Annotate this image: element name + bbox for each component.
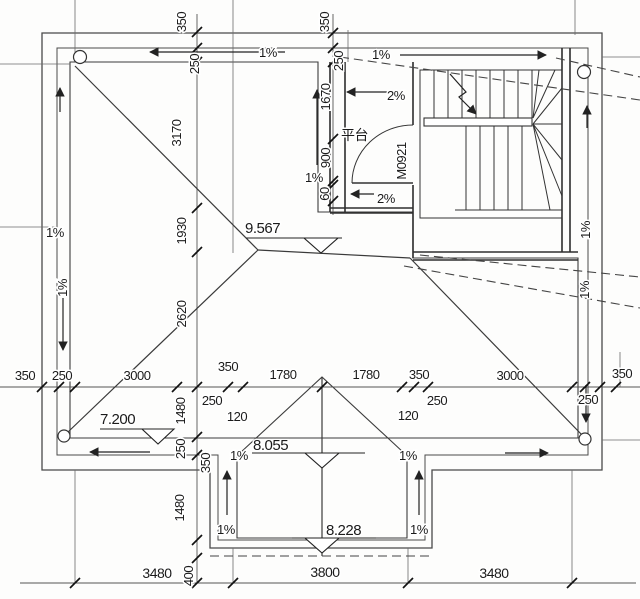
- slope-label: 1%: [577, 280, 592, 299]
- slope-label: 1%: [259, 45, 278, 60]
- dim-label: 1780: [353, 367, 380, 382]
- elevation-markers: [100, 238, 376, 553]
- elevation-triangle: [142, 429, 174, 444]
- dim-label: 250: [52, 368, 72, 383]
- roof-plan-page: 9.567 7.200 8.055 8.228 平台 M0921 1% 1% 2…: [0, 0, 640, 599]
- hip-line-bottom-right: [410, 258, 583, 436]
- drain-circle: [58, 430, 70, 442]
- dim-label: 120: [227, 409, 247, 424]
- stair-landing-line: [455, 210, 562, 218]
- main-ridge-line: [258, 250, 410, 258]
- dim-label: 350: [198, 453, 213, 473]
- slope-label: 2%: [377, 191, 396, 206]
- dim-label: 3480: [142, 565, 172, 581]
- slope-label: 1%: [410, 522, 429, 537]
- hip-line-bottom-left: [68, 250, 258, 432]
- dim-label: 350: [409, 367, 429, 382]
- stair-handrail: [424, 118, 532, 126]
- elevation-label-bay-ridge: 8.228: [326, 522, 361, 539]
- slope-label: 1%: [230, 448, 249, 463]
- dim-label: 60: [317, 187, 332, 201]
- dim-label: 2620: [174, 300, 189, 327]
- slope-label: 1%: [217, 522, 236, 537]
- dim-label: 1930: [174, 217, 189, 244]
- dim-label: 350: [174, 12, 189, 32]
- dim-label: 3480: [479, 565, 509, 581]
- dim-label: 3000: [497, 368, 524, 383]
- elevation-triangle: [305, 453, 339, 468]
- slope-label: 1%: [372, 47, 391, 62]
- dim-label: 250: [578, 392, 598, 407]
- stair-lower-treads: [466, 126, 522, 210]
- elevation-label-main-ridge: 9.567: [245, 220, 280, 237]
- stair-winder-treads: [533, 70, 562, 210]
- dim-label: 350: [15, 368, 35, 383]
- drain-circle: [74, 51, 87, 64]
- dim-label: 120: [398, 408, 418, 423]
- dim-label: 250: [427, 393, 447, 408]
- door-label: M0921: [394, 142, 409, 180]
- dim-label: 3170: [169, 119, 184, 146]
- dim-label: 1480: [172, 494, 187, 521]
- elevation-label-bay-eave: 8.055: [253, 437, 288, 454]
- elevation-triangle: [305, 538, 339, 553]
- elevation-label-left-eave: 7.200: [100, 411, 135, 428]
- dim-label: 900: [318, 148, 333, 168]
- slope-label: 1%: [305, 170, 324, 185]
- stair-plan: [420, 70, 562, 218]
- dim-label: 3000: [124, 368, 151, 383]
- dim-label: 3800: [310, 564, 340, 580]
- dim-label: 1670: [318, 83, 333, 110]
- slope-label: 1%: [46, 225, 65, 240]
- elevation-triangle: [304, 238, 338, 253]
- walls: [330, 48, 578, 260]
- dim-label: 350: [317, 12, 332, 32]
- roof-plan-drawing: 9.567 7.200 8.055 8.228 平台 M0921 1% 1% 2…: [0, 0, 640, 599]
- dim-label: 250: [202, 393, 222, 408]
- slope-label: 1%: [399, 448, 418, 463]
- platform-label: 平台: [341, 127, 368, 143]
- dim-label: 250: [173, 439, 188, 459]
- stair-direction-arrow: [450, 74, 476, 114]
- dim-label: 250: [331, 51, 346, 71]
- slope-label: 1%: [55, 278, 70, 297]
- slope-label: 2%: [387, 88, 406, 103]
- drain-circle: [578, 66, 591, 79]
- roof-lines: [68, 66, 583, 556]
- slope-label: 1%: [578, 220, 593, 239]
- dim-label: 1780: [270, 367, 297, 382]
- hip-line-top-left: [75, 66, 258, 250]
- dim-label: 350: [218, 359, 238, 374]
- dim-label: 350: [612, 366, 632, 381]
- drain-circle: [579, 433, 591, 445]
- dim-label: 250: [187, 54, 202, 74]
- dim-label: 400: [181, 566, 196, 586]
- dim-label: 1480: [173, 397, 188, 424]
